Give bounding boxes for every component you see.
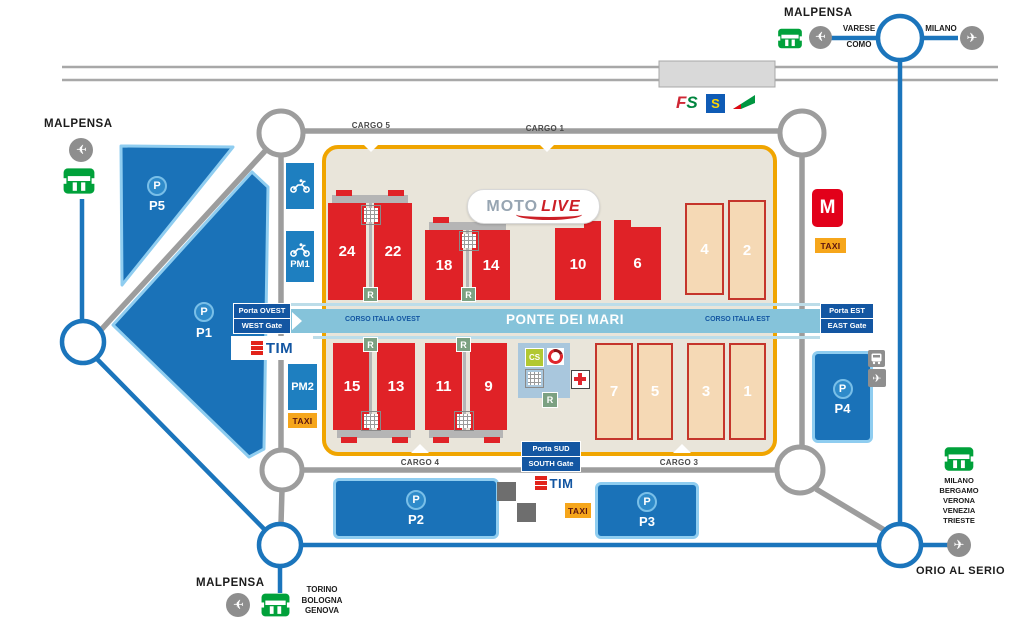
pavilion-detail — [433, 437, 449, 443]
railway-station — [659, 61, 775, 87]
motorcycle-icon — [289, 179, 311, 193]
parking-p-icon: P — [406, 490, 426, 510]
parking-pm2-label: PM2 — [291, 381, 314, 393]
corso-italia-est-label: CORSO ITALIA EST — [685, 316, 790, 323]
como-label: COMO — [842, 40, 876, 51]
band-arrow-west-icon — [292, 312, 302, 330]
pavilion-detail — [388, 190, 404, 196]
pavilion-number: 13 — [388, 378, 405, 395]
pavilion-number: 14 — [483, 257, 500, 274]
destination: TORINO — [294, 585, 350, 596]
pavilion-roof — [332, 195, 408, 203]
parking-p2: P P2 — [333, 478, 499, 539]
gate-label-it: Porta EST — [821, 304, 873, 319]
pavilion-1: 1 — [729, 343, 766, 440]
tim-bars-icon — [535, 476, 547, 490]
restaurant-icon: R — [456, 337, 471, 352]
pavilion-2: 2 — [728, 200, 766, 300]
s-line-logo-icon: S — [706, 94, 725, 113]
restaurant-icon: R — [461, 287, 476, 302]
trenord-logo-icon — [730, 92, 758, 114]
pavilion-detail — [433, 217, 449, 223]
logo-ring — [546, 347, 566, 367]
parking-p-icon: P — [637, 492, 657, 512]
tim-logo: TIM — [231, 336, 313, 360]
pavilion-number: 6 — [633, 255, 641, 272]
parking-pm1-label: PM1 — [290, 259, 310, 270]
pavilion-number: 4 — [700, 241, 708, 258]
destination: MILANO — [932, 476, 986, 486]
services-grid-icon — [454, 411, 474, 431]
airplane-icon: ✈ — [226, 593, 250, 617]
south-gate-sign: Porta SUD SOUTH Gate — [521, 441, 581, 472]
band-stripe — [288, 303, 820, 306]
pavilion-number: 7 — [610, 383, 618, 400]
parking-p-icon: P — [147, 176, 167, 196]
pavilion-detail — [336, 190, 352, 196]
tim-wordmark: TIM — [550, 476, 574, 491]
pavilion-detail — [341, 437, 357, 443]
gate-label-it: Porta SUD — [522, 442, 580, 457]
parking-p3: P P3 — [595, 482, 699, 539]
pavilion-number: 22 — [385, 243, 402, 260]
parking-p-icon: P — [194, 302, 214, 322]
milano-label: MILANO — [922, 24, 960, 35]
airplane-icon: ✈ — [960, 26, 984, 50]
service-building — [497, 482, 516, 501]
tim-wordmark: TIM — [266, 340, 293, 357]
taxi-badge: TAXI — [565, 503, 591, 518]
motolive-logo: MOTO LIVE — [467, 189, 600, 224]
varese-label: VARESE — [840, 24, 878, 35]
destination: VENEZIA — [932, 506, 986, 516]
corso-italia-ovest-label: CORSO ITALIA OVEST — [330, 316, 435, 323]
orio-al-serio-label: ORIO AL SERIO — [916, 565, 1016, 577]
pavilion-number: 18 — [436, 257, 453, 274]
parking-p4: P P4 — [812, 351, 873, 443]
parking-p4-label: P4 — [835, 401, 851, 416]
motorway-icon — [776, 26, 804, 51]
ponte-dei-mari-label: PONTE DEI MARI — [480, 312, 650, 327]
parking-p2-label: P2 — [408, 512, 424, 527]
metro-icon: M — [812, 189, 843, 227]
motorway-icon — [259, 592, 292, 618]
parking-p1-label: P1 — [188, 325, 220, 340]
southeast-destinations: MILANO BERGAMO VERONA VENEZIA TRIESTE — [932, 476, 986, 526]
pavilion-9: 9 — [470, 343, 507, 430]
pavilion-detail — [392, 437, 408, 443]
motorcycle-icon — [289, 243, 311, 257]
pavilion-number: 3 — [702, 383, 710, 400]
motorway-icon — [60, 167, 98, 195]
gate-notch — [538, 143, 556, 152]
west-gate-sign: Porta OVEST WEST Gate — [233, 303, 291, 334]
bus-icon — [868, 350, 885, 367]
parking-p3-label: P3 — [639, 514, 655, 529]
gate-label-it: Porta OVEST — [234, 304, 290, 319]
pavilion-4: 4 — [685, 203, 724, 295]
southwest-destinations: TORINO BOLOGNA GENOVA — [294, 585, 350, 617]
airplane-icon: ✈ — [69, 138, 93, 162]
motolive-swoosh — [516, 209, 582, 220]
gate-label-en: SOUTH Gate — [522, 457, 580, 471]
malpensa-label: MALPENSA — [784, 7, 868, 19]
pavilion-number: 5 — [651, 383, 659, 400]
pavilion-10: 10 — [555, 228, 601, 300]
destination: TRIESTE — [932, 516, 986, 526]
cs-icon: CS — [525, 348, 544, 367]
moto-parking-pm1: PM1 — [286, 231, 314, 282]
cargo-3-label: CARGO 3 — [653, 458, 705, 467]
airplane-icon: ✈ — [809, 26, 832, 49]
pavilion-number: 24 — [339, 243, 356, 260]
cargo-5-label: CARGO 5 — [345, 121, 397, 130]
destination: BERGAMO — [932, 486, 986, 496]
destination: VERONA — [932, 496, 986, 506]
pavilion-13: 13 — [377, 343, 415, 430]
gate-label-en: WEST Gate — [234, 319, 290, 333]
centro-servizi-logo-icon — [547, 348, 564, 365]
motorway-icon — [942, 446, 976, 472]
restaurant-icon: R — [363, 337, 378, 352]
pavilion-18: 18 — [425, 230, 463, 300]
venue-transport-map: CARGO 5 CARGO 1 CARGO 4 CARGO 3 CORSO IT… — [0, 0, 1024, 644]
services-grid-icon — [525, 369, 544, 388]
tim-bars-icon — [251, 341, 263, 355]
tim-logo: TIM — [523, 473, 585, 493]
pavilion-detail — [484, 437, 500, 443]
malpensa-label: MALPENSA — [44, 118, 134, 130]
taxi-badge: TAXI — [815, 238, 846, 253]
destination: BOLOGNA — [294, 596, 350, 607]
moto-parking-square — [286, 163, 314, 209]
gate-notch — [362, 143, 380, 152]
pavilion-5: 5 — [637, 343, 673, 440]
services-grid-icon — [361, 205, 381, 225]
gate-label-en: EAST Gate — [821, 319, 873, 333]
pavilion-number: 10 — [570, 256, 587, 273]
services-grid-icon — [459, 231, 479, 251]
moto-parking-pm2: PM2 — [288, 364, 317, 410]
fs-logo-icon: FS — [676, 92, 702, 114]
service-building — [517, 503, 536, 522]
gate-notch — [673, 444, 691, 453]
cargo-4-label: CARGO 4 — [394, 458, 446, 467]
restaurant-icon: R — [542, 392, 558, 408]
east-gate-sign: Porta EST EAST Gate — [820, 303, 874, 334]
pavilion-3: 3 — [687, 343, 725, 440]
taxi-badge: TAXI — [288, 413, 317, 428]
first-aid-cross-icon — [571, 370, 590, 389]
cargo-1-label: CARGO 1 — [519, 124, 571, 133]
pavilion-number: 9 — [484, 378, 492, 395]
pavilion-number: 15 — [344, 378, 361, 395]
pavilion-6: 6 — [614, 227, 661, 300]
airplane-icon: ✈ — [947, 533, 971, 557]
gate-notch — [411, 444, 429, 453]
cross-h — [574, 377, 586, 381]
malpensa-label: MALPENSA — [196, 577, 286, 589]
pavilion-number: 11 — [436, 378, 452, 395]
pavilion-7: 7 — [595, 343, 633, 440]
pavilion-number: 1 — [743, 383, 751, 400]
parking-p-icon: P — [833, 379, 853, 399]
parking-p5-label: P5 — [140, 198, 174, 213]
airplane-square-icon: ✈ — [868, 369, 886, 387]
restaurant-icon: R — [363, 287, 378, 302]
destination: GENOVA — [294, 606, 350, 617]
services-grid-icon — [361, 411, 381, 431]
pavilion-number: 2 — [743, 242, 751, 259]
